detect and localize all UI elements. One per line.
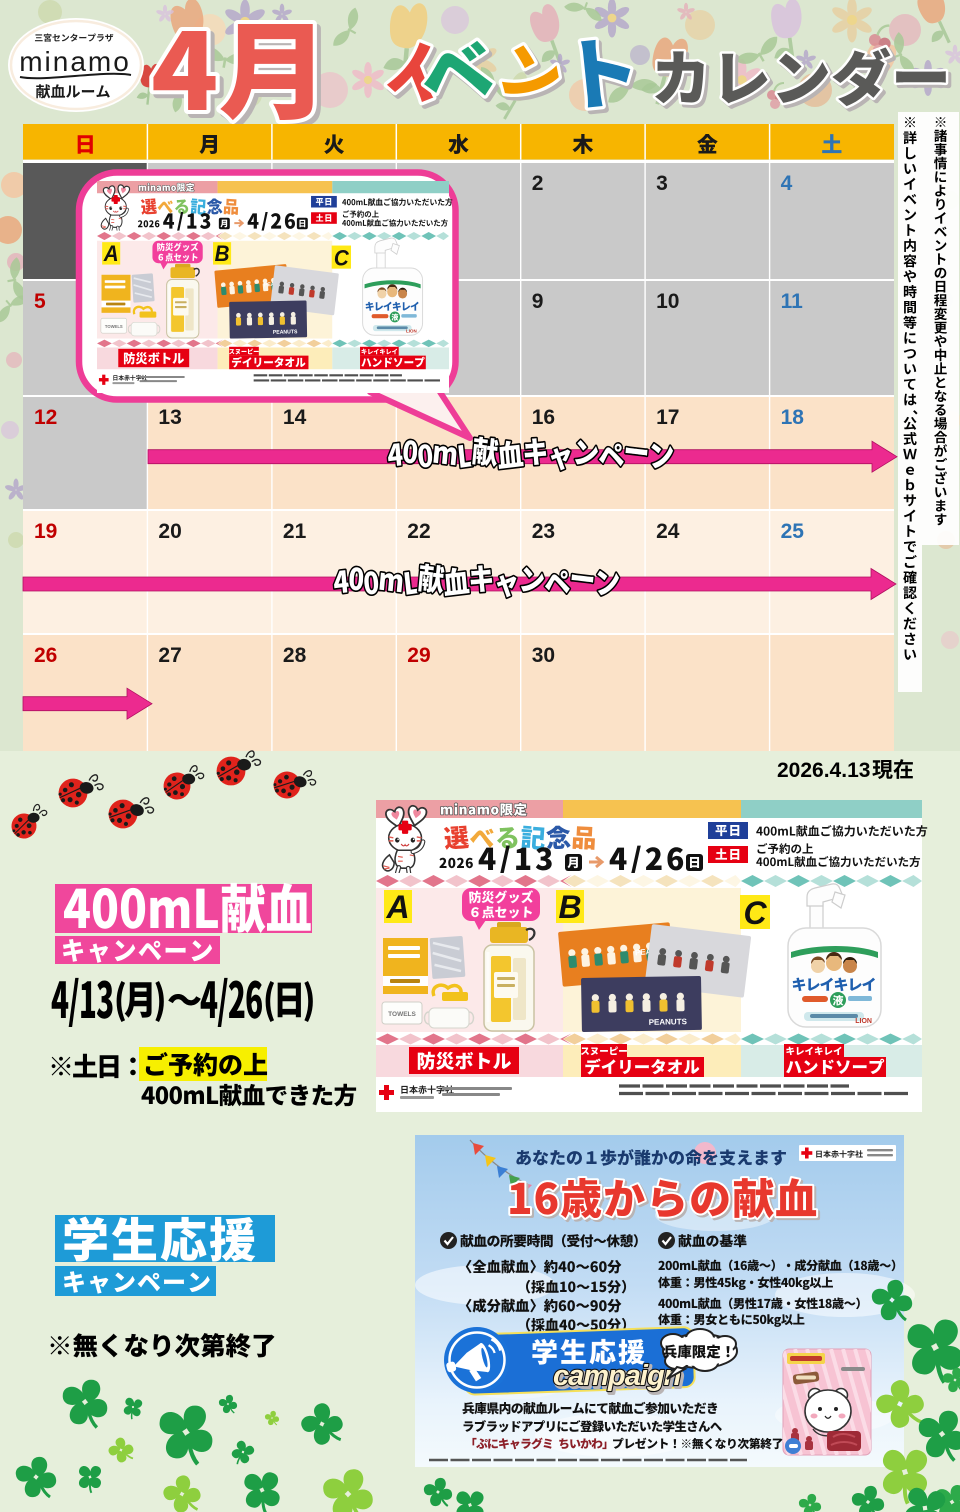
svg-text:20: 20 — [158, 520, 181, 543]
svg-text:10: 10 — [656, 290, 679, 313]
svg-text:A: A — [385, 889, 409, 925]
svg-text:3: 3 — [656, 172, 668, 195]
svg-text:C: C — [743, 895, 767, 931]
svg-text:14: 14 — [283, 406, 307, 429]
svg-text:B: B — [558, 889, 581, 925]
svg-text:4: 4 — [781, 172, 793, 195]
svg-text:28: 28 — [283, 644, 307, 667]
svg-text:B: B — [215, 243, 230, 267]
svg-text:2: 2 — [532, 172, 544, 195]
svg-text:minamo: minamo — [19, 46, 131, 77]
svg-text:21: 21 — [283, 520, 307, 543]
svg-text:A: A — [103, 243, 119, 267]
svg-text:19: 19 — [34, 520, 57, 543]
svg-text:13: 13 — [158, 406, 181, 429]
svg-text:9: 9 — [532, 290, 544, 313]
svg-text:27: 27 — [158, 644, 181, 667]
svg-text:TOWELS: TOWELS — [105, 324, 123, 329]
svg-text:5: 5 — [34, 290, 46, 313]
svg-text:16: 16 — [532, 406, 555, 429]
svg-text:29: 29 — [407, 644, 430, 667]
svg-text:26: 26 — [34, 644, 57, 667]
svg-text:18: 18 — [781, 406, 805, 429]
svg-text:12: 12 — [34, 406, 57, 429]
svg-text:25: 25 — [781, 520, 805, 543]
svg-text:24: 24 — [656, 520, 680, 543]
svg-text:11: 11 — [781, 290, 804, 313]
svg-text:2026.4.13: 2026.4.13 — [777, 759, 870, 782]
svg-text:PEANUTS: PEANUTS — [273, 329, 298, 336]
svg-text:LION: LION — [855, 1018, 872, 1025]
svg-text:23: 23 — [532, 520, 555, 543]
svg-text:30: 30 — [532, 644, 555, 667]
svg-text:campaign: campaign — [553, 1360, 681, 1392]
svg-text:C: C — [334, 247, 350, 271]
svg-text:22: 22 — [407, 520, 430, 543]
svg-text:TOWELS: TOWELS — [388, 1011, 416, 1018]
svg-text:PEANUTS: PEANUTS — [649, 1017, 688, 1027]
svg-text:17: 17 — [656, 406, 679, 429]
svg-text:LION: LION — [406, 328, 417, 333]
